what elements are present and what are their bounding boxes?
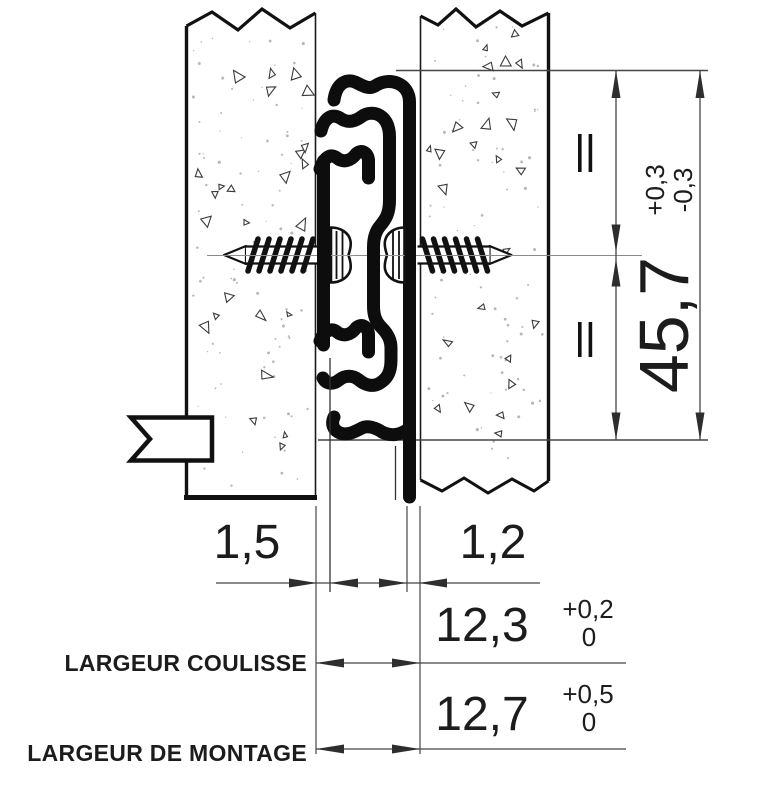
- rail-right-thickness: 1,2: [460, 516, 527, 569]
- slide-width-dimension: 12,3 +0,2 0 LARGEUR COULISSE: [65, 594, 626, 676]
- drawing-canvas: 45,7 +0,3 -0,3 1,5 1,2 12,3 +0,2 0 LARGE…: [0, 0, 774, 800]
- screw-head-right: [383, 228, 405, 283]
- height-tol-minus: -0,3: [668, 168, 698, 213]
- slide-width-label: LARGEUR COULISSE: [65, 650, 307, 676]
- equal-mark-icon: [578, 134, 592, 172]
- slide-width-tol-plus: +0,2: [562, 594, 613, 624]
- height-value: 45,7: [625, 257, 703, 393]
- technical-drawing: 45,7 +0,3 -0,3 1,5 1,2 12,3 +0,2 0 LARGE…: [0, 0, 774, 800]
- height-tol-plus: +0,3: [640, 164, 670, 215]
- slide-profile: [320, 81, 410, 497]
- mounting-width-tol-zero: 0: [582, 707, 596, 737]
- slide-width-tol-zero: 0: [582, 622, 596, 652]
- mounting-width-value: 12,7: [435, 688, 528, 741]
- mounting-width-label: LARGEUR DE MONTAGE: [27, 740, 307, 766]
- equal-mark-icon: [578, 322, 592, 357]
- screw-head-left: [331, 228, 353, 283]
- extension-lines: [316, 506, 420, 754]
- shelf-break-bracket: [131, 418, 212, 461]
- slide-width-value: 12,3: [435, 599, 528, 652]
- rail-left-thickness: 1,5: [214, 516, 281, 569]
- rail-thickness-dimension: 1,5 1,2: [214, 516, 540, 588]
- mounting-width-dimension: 12,7 +0,5 0 LARGEUR DE MONTAGE: [27, 679, 626, 766]
- mounting-width-tol-plus: +0,5: [562, 679, 613, 709]
